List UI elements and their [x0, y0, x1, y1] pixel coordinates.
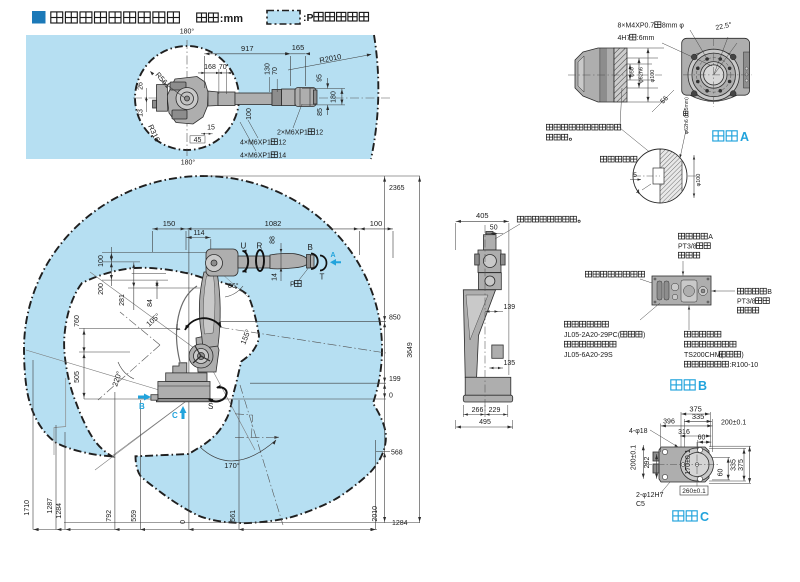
svg-text:200±0.1: 200±0.1 — [631, 445, 638, 470]
svg-text:199: 199 — [389, 376, 401, 383]
svg-text::P: :P — [303, 12, 314, 24]
svg-text:B: B — [698, 379, 707, 393]
svg-text:396: 396 — [663, 419, 675, 426]
svg-text:4-φ18: 4-φ18 — [629, 428, 648, 435]
svg-text:26: 26 — [138, 82, 145, 90]
svg-text:60: 60 — [718, 469, 725, 477]
svg-text:0: 0 — [389, 393, 393, 400]
svg-text::mm: :mm — [220, 13, 243, 25]
svg-text:15: 15 — [207, 125, 215, 132]
svg-text:405: 405 — [476, 211, 489, 220]
svg-text:PT3/8: PT3/8 — [737, 299, 756, 306]
svg-text:φ100: φ100 — [696, 174, 702, 187]
svg-text:0: 0 — [180, 520, 187, 524]
svg-text:R: R — [257, 242, 263, 251]
svg-text:B: B — [767, 289, 772, 296]
svg-text:U: U — [241, 242, 247, 251]
svg-text:T: T — [320, 273, 325, 282]
svg-text:4×M6XP1:: 4×M6XP1: — [240, 140, 273, 147]
svg-text:2-φ12H7: 2-φ12H7 — [636, 492, 664, 499]
svg-text:C5: C5 — [636, 501, 645, 508]
svg-text:100: 100 — [98, 255, 105, 267]
svg-text:266: 266 — [472, 407, 484, 414]
svg-text:12: 12 — [315, 130, 323, 137]
svg-text:168: 168 — [204, 64, 216, 71]
svg-text:2×M6XP1:: 2×M6XP1: — [277, 130, 310, 137]
svg-text:5: 5 — [633, 172, 637, 179]
svg-text:4H7: 4H7 — [618, 35, 631, 42]
svg-text:760: 760 — [74, 315, 81, 327]
svg-text:1710: 1710 — [24, 500, 31, 516]
svg-text:): ) — [643, 332, 645, 339]
svg-text:260±0.1: 260±0.1 — [682, 488, 706, 495]
svg-text:2010: 2010 — [372, 506, 379, 522]
svg-text:335: 335 — [692, 412, 705, 421]
svg-text:505: 505 — [74, 371, 81, 383]
svg-text:95: 95 — [317, 74, 324, 82]
svg-text:B: B — [308, 243, 313, 252]
svg-text:281: 281 — [119, 294, 126, 306]
svg-text:13: 13 — [138, 109, 145, 117]
svg-text:130: 130 — [265, 63, 272, 75]
svg-text:70: 70 — [272, 67, 279, 75]
svg-text::R100-10: :R100-10 — [729, 362, 758, 369]
svg-text:φ50: φ50 — [630, 67, 636, 77]
svg-text:86°: 86° — [228, 282, 239, 290]
svg-text:2365: 2365 — [389, 185, 405, 192]
svg-text:PT3/8: PT3/8 — [678, 244, 697, 251]
svg-text:14: 14 — [278, 153, 286, 160]
svg-text:292: 292 — [644, 457, 651, 469]
svg-text:5mm): 5mm) — [684, 97, 690, 111]
svg-text:165: 165 — [292, 43, 305, 52]
svg-text:200±0.1: 200±0.1 — [721, 420, 746, 427]
svg-text:JL05-2A20-29PC(: JL05-2A20-29PC( — [564, 332, 621, 339]
svg-text:180°: 180° — [180, 28, 195, 36]
svg-text:8×M4XP0.7:: 8×M4XP0.7: — [618, 23, 657, 30]
svg-text:850: 850 — [389, 315, 401, 322]
svg-text:A: A — [331, 252, 336, 259]
svg-text:A: A — [708, 234, 713, 241]
svg-text:B: B — [139, 402, 145, 411]
svg-text:14: 14 — [272, 273, 279, 281]
svg-text:4×M6XP1:: 4×M6XP1: — [240, 153, 273, 160]
svg-text:139: 139 — [504, 304, 516, 311]
svg-text:S: S — [208, 402, 213, 411]
svg-text:561: 561 — [230, 510, 237, 522]
svg-text:135: 135 — [504, 360, 516, 367]
svg-text:85: 85 — [317, 108, 324, 116]
svg-text:12: 12 — [278, 140, 286, 147]
svg-text:70: 70 — [219, 64, 227, 71]
svg-text::6mm: :6mm — [637, 35, 655, 42]
svg-text:L: L — [176, 323, 181, 332]
svg-text:84: 84 — [147, 299, 154, 307]
svg-text:170°: 170° — [224, 461, 240, 470]
svg-text:559: 559 — [131, 510, 138, 522]
svg-text:180°: 180° — [181, 159, 196, 167]
svg-text:495: 495 — [479, 419, 491, 426]
svg-text:60: 60 — [698, 434, 706, 441]
svg-text:917: 917 — [241, 44, 254, 53]
svg-text:316: 316 — [678, 429, 690, 436]
svg-text:1284: 1284 — [56, 503, 63, 519]
svg-text:88: 88 — [270, 236, 277, 244]
svg-text:φ62h6 (: φ62h6 ( — [684, 116, 690, 134]
svg-text:792: 792 — [106, 510, 113, 522]
svg-text:100: 100 — [370, 219, 383, 228]
svg-text:A: A — [740, 130, 749, 144]
svg-text:1287: 1287 — [47, 498, 54, 514]
svg-text:8mm φ: 8mm φ — [662, 23, 685, 30]
svg-text:3649: 3649 — [407, 342, 414, 358]
svg-text:1284: 1284 — [392, 520, 408, 527]
svg-text:375: 375 — [738, 459, 745, 471]
svg-text:568: 568 — [391, 450, 403, 457]
svg-text:335: 335 — [730, 459, 737, 471]
svg-text:50: 50 — [490, 225, 498, 232]
svg-text:1082: 1082 — [265, 219, 282, 228]
svg-text:φ100: φ100 — [650, 70, 656, 83]
svg-text:C: C — [172, 411, 178, 420]
svg-text:JL05-6A20-29S: JL05-6A20-29S — [564, 352, 613, 359]
svg-text:200: 200 — [98, 283, 105, 295]
svg-text:): ) — [741, 352, 743, 359]
svg-text:229: 229 — [489, 407, 501, 414]
svg-text:180: 180 — [331, 91, 338, 103]
svg-text:170±0.1: 170±0.1 — [685, 449, 692, 474]
svg-text:TS200CHM(: TS200CHM( — [684, 352, 724, 359]
svg-text:C: C — [700, 510, 709, 524]
svg-text:4: 4 — [636, 189, 640, 196]
svg-text:114: 114 — [193, 230, 204, 237]
svg-text:150: 150 — [163, 219, 176, 228]
svg-text:100: 100 — [246, 108, 253, 120]
